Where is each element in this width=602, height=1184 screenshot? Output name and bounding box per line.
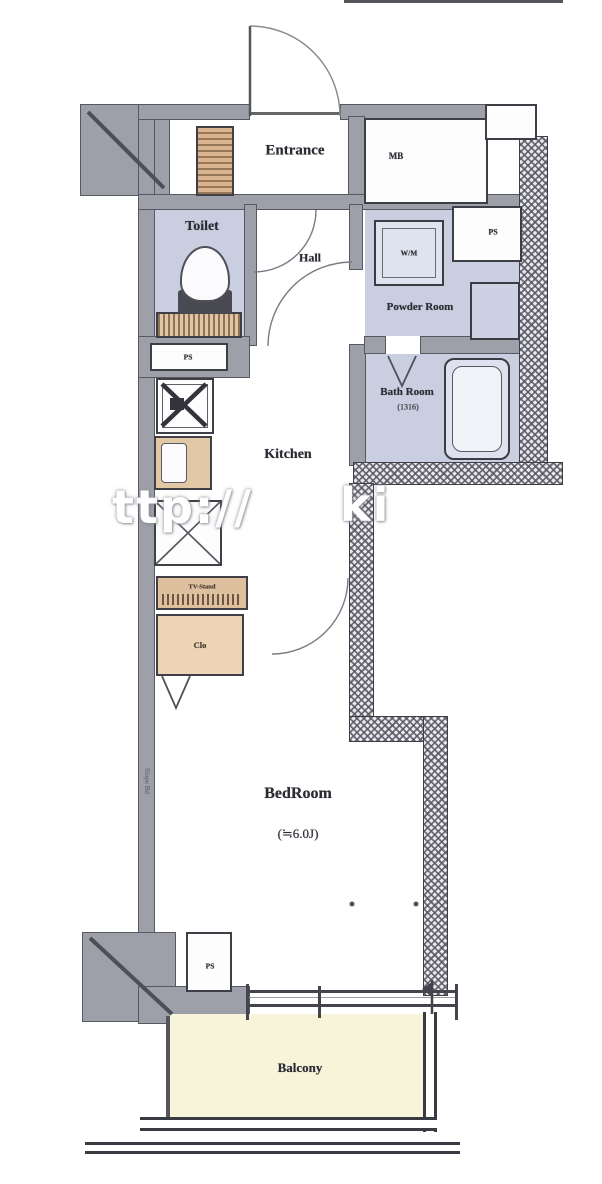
stove-box-inner <box>162 384 208 428</box>
shoe-cabinet <box>196 126 234 196</box>
ps-top-label: PS <box>488 228 497 237</box>
watermark-right: ki <box>340 478 390 532</box>
storage-shelf-hatch <box>162 594 242 605</box>
powder-room-label: Powder Room <box>387 301 454 313</box>
bedroom-dot-left <box>350 902 355 907</box>
ps-mid-label: PS <box>184 353 193 362</box>
bedroom-dot-right <box>414 902 419 907</box>
watermark-left: ttp:// <box>112 480 253 534</box>
wall-toilet-hall <box>244 204 257 346</box>
wall-top-left-segment <box>138 104 250 120</box>
closet-label: Clo <box>194 640 207 650</box>
entrance-label: Entrance <box>265 143 324 160</box>
window-tick-left <box>246 984 249 1020</box>
ps-bottom-label: PS <box>206 962 215 971</box>
mb-room <box>364 118 488 204</box>
powder-door-arc <box>268 262 352 346</box>
toilet-label: Toilet <box>185 219 219 235</box>
bedroom-door-arc <box>272 578 348 654</box>
closet-folding-door <box>162 676 190 708</box>
storage-label: TV-Stand <box>189 584 216 591</box>
wall-entrance-mb <box>348 116 365 206</box>
wall-powder-bath-left <box>364 336 386 354</box>
site-boundary-line <box>85 1142 460 1154</box>
bath-room-label: Bath Room <box>380 386 433 398</box>
balcony-left-edge <box>166 1016 170 1120</box>
mb-label: MB <box>389 151 404 161</box>
wall-hall-powder-upper <box>349 204 363 270</box>
corridor-edge-line <box>344 0 563 3</box>
balcony-rail-right <box>423 1012 437 1132</box>
bath-room-size: (1316) <box>397 403 418 412</box>
ps-box-top-right <box>452 206 522 262</box>
toilet-counter-hatched <box>156 312 242 338</box>
bedroom-size: (≒6.0J) <box>278 826 319 842</box>
bedroom-label: BedRoom <box>264 785 332 803</box>
balcony-label: Balcony <box>278 1060 323 1076</box>
kitchen-label: Kitchen <box>264 447 311 463</box>
window-tick-center <box>318 986 321 1018</box>
wall-hatched-bedroom-right <box>423 716 448 996</box>
entrance-door-arc <box>250 26 340 116</box>
window-line-upper <box>248 990 458 993</box>
hall-label: Hall <box>299 251 321 266</box>
wall-bath-left <box>349 344 366 466</box>
entrance-door-sill <box>250 112 340 115</box>
niche-top-right <box>485 104 537 140</box>
wall-hatched-right-upper <box>519 136 548 464</box>
window-line-mid <box>248 997 458 998</box>
balcony-rail-bottom <box>140 1117 437 1131</box>
wall-note-label: Slope Bd <box>143 768 151 794</box>
bathtub-inner <box>452 366 502 452</box>
floor-plan: Entrance MB Toilet Hall W/M PS Powder Ro… <box>0 0 602 1184</box>
wm-label: W/M <box>401 249 418 258</box>
vanity-counter <box>470 282 520 340</box>
window-tick-right <box>455 984 458 1020</box>
window-line-lower <box>248 1004 458 1007</box>
sink-basin <box>161 443 187 483</box>
wall-left <box>138 104 155 1016</box>
